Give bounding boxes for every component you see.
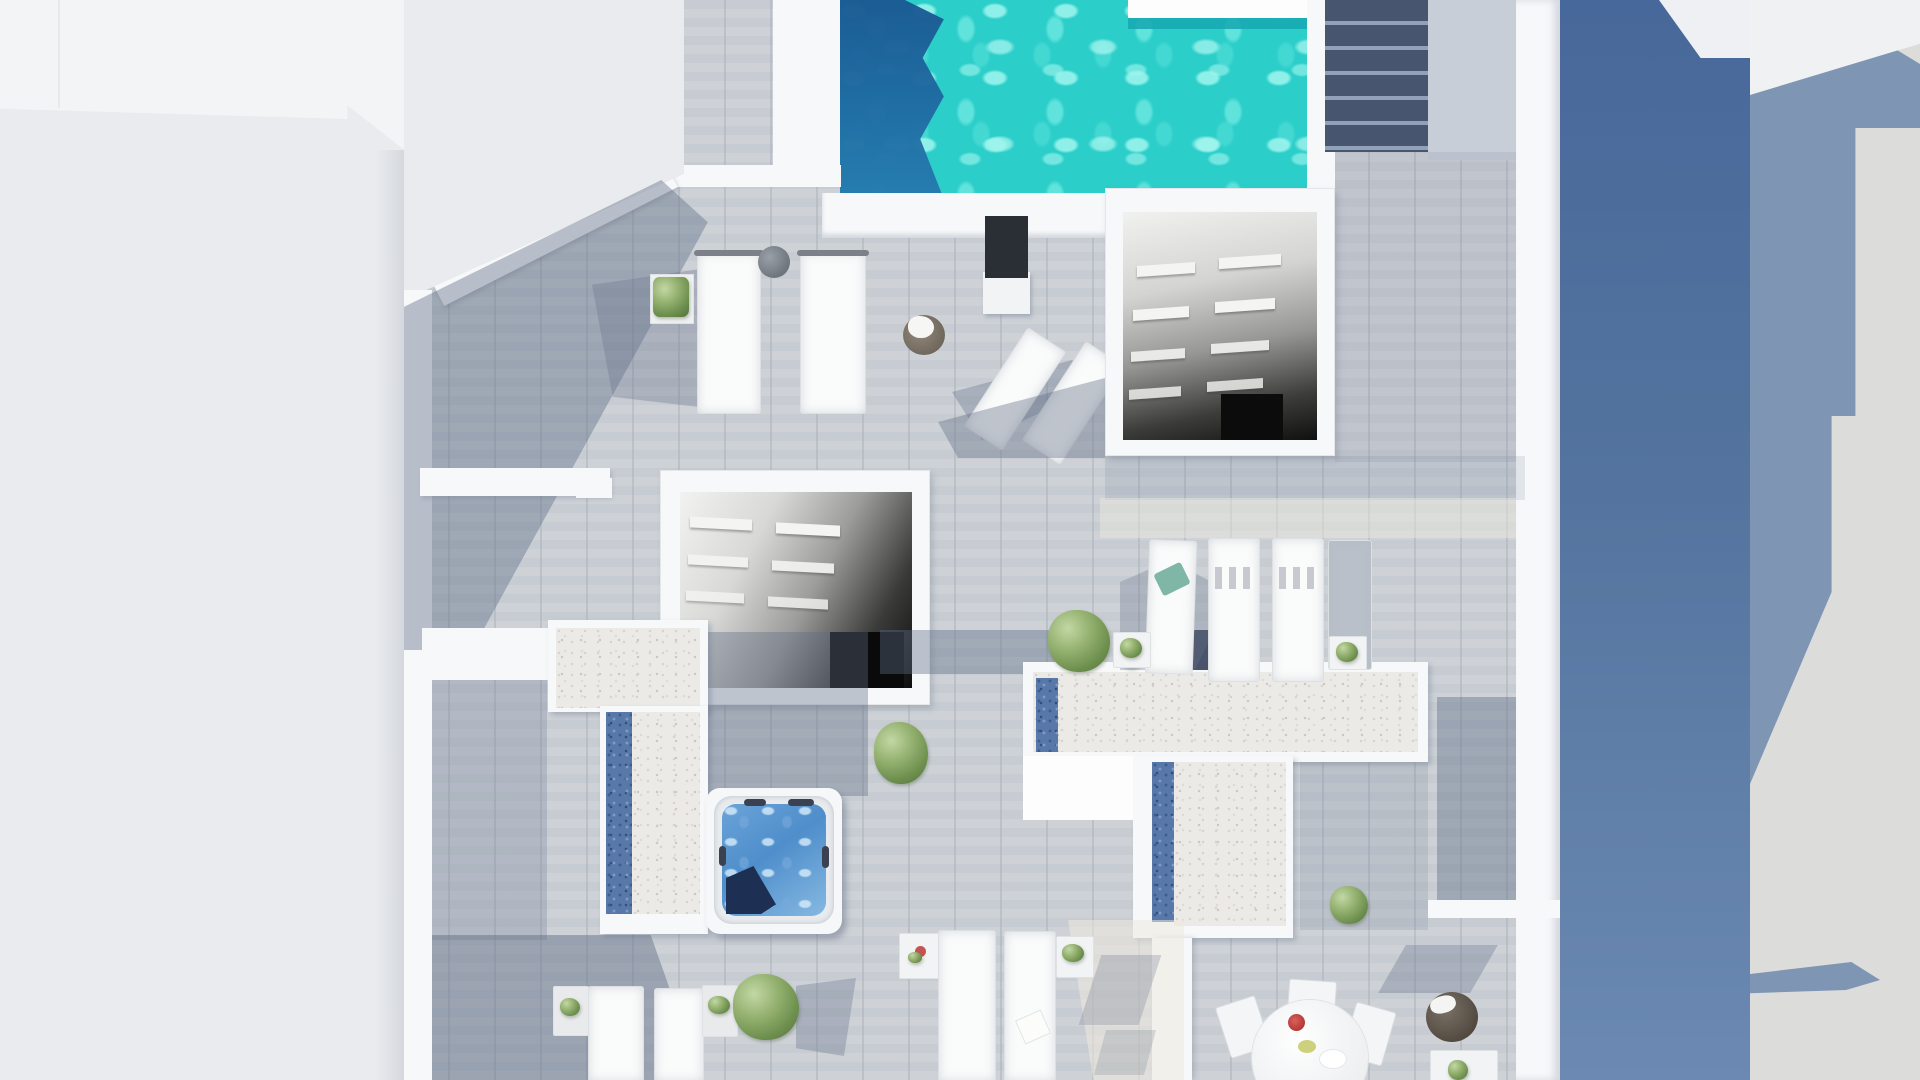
deck-shadow-below-stairs xyxy=(1335,152,1516,462)
left-building-edge-line xyxy=(58,0,60,108)
plate-white xyxy=(1320,1050,1346,1068)
plant-bottom-right xyxy=(1448,1060,1468,1080)
bowl-tomatoes xyxy=(1288,1014,1305,1031)
bottom-center-lounger-2 xyxy=(1004,931,1056,1080)
center-planter-bar-blue-strip xyxy=(1036,678,1058,752)
row-lounger-1 xyxy=(1145,539,1198,675)
hot-tub-handle-right xyxy=(822,846,829,868)
center-planter-corner-wall-top xyxy=(1023,756,1133,820)
deck-shadow-below-stairwell xyxy=(1105,456,1525,500)
hot-tub-handle-top-right xyxy=(788,799,814,806)
parapet-to-planter xyxy=(422,628,552,680)
deck-shadow-right-edge xyxy=(1437,697,1516,910)
daybed-left xyxy=(697,252,761,414)
deck-shadow-left-column xyxy=(432,640,547,940)
flower-leaves xyxy=(908,952,922,963)
external-staircase xyxy=(1325,0,1428,152)
shower-base xyxy=(983,272,1030,314)
center-planter-stem-blue-strip xyxy=(1152,762,1174,922)
pool-coping-upper-ledge xyxy=(661,165,841,187)
hot-tub-handle-left xyxy=(719,846,726,866)
plant-bottom-left-1 xyxy=(560,998,580,1016)
left-building-shade xyxy=(376,150,404,1080)
bush-stem-corner xyxy=(1330,886,1368,924)
right-neighbor-blue-wall xyxy=(1560,0,1750,1080)
stairwell-upper xyxy=(1105,188,1335,456)
plant-bottom-left-2 xyxy=(708,996,730,1014)
plant-row-left xyxy=(1120,638,1142,658)
pool-coping-left xyxy=(773,0,840,185)
parapet-mid-left-step xyxy=(576,478,612,498)
bush-left-of-planter xyxy=(874,722,928,784)
daybed-right xyxy=(800,252,866,414)
left-building-roof xyxy=(0,0,404,1080)
hot-tub-handle-top-left xyxy=(744,799,766,806)
staircase-landing xyxy=(1428,0,1516,160)
center-planter-stem-gravel xyxy=(1174,762,1286,926)
center-planter-bar-gravel xyxy=(1033,672,1418,752)
pool-corner-platform xyxy=(1128,0,1307,18)
left-planter-lower-gravel xyxy=(632,712,700,914)
sunlit-band-loungers xyxy=(1100,498,1516,538)
towel-teal xyxy=(1153,562,1190,597)
plant-bottom-center xyxy=(1062,944,1084,962)
cushion-stripes xyxy=(1279,567,1317,589)
left-planter-blue-strip xyxy=(606,712,632,914)
round-side-table xyxy=(758,246,790,278)
plant-row-right xyxy=(1336,642,1358,662)
daybed-headrest-bar xyxy=(797,250,869,256)
bottom-left-lounger-1 xyxy=(588,986,644,1080)
shower-panel xyxy=(985,216,1028,278)
hot-tub-area-shadow xyxy=(708,632,868,796)
row-lounger-3 xyxy=(1272,538,1324,682)
bush-center xyxy=(1048,610,1110,672)
stairwell-upper-opening xyxy=(1123,212,1317,440)
plate-lemons xyxy=(1298,1040,1316,1053)
cushion-stripes xyxy=(1215,567,1253,589)
left-planter-upper-gravel xyxy=(556,628,700,708)
towel-white xyxy=(1015,1009,1051,1044)
rooftop-terrace-render xyxy=(0,0,1920,1080)
low-wall-right xyxy=(1428,900,1560,918)
terrace-right-wall xyxy=(1516,0,1560,1080)
daybed-headrest-bar xyxy=(694,250,764,256)
stairwell-upper-doorway xyxy=(1221,394,1283,440)
daybed-plant xyxy=(653,277,689,317)
bottom-center-lounger-1 xyxy=(938,930,996,1080)
row-lounger-2 xyxy=(1208,538,1260,682)
big-bush-bottom xyxy=(733,974,799,1040)
basket-towel xyxy=(908,316,934,338)
bottom-left-lounger-2 xyxy=(654,988,704,1080)
